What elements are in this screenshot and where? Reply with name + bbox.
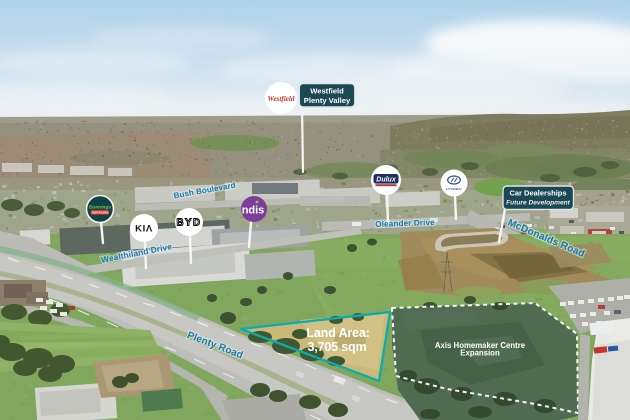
- svg-text:Oleander Drive: Oleander Drive: [375, 217, 435, 229]
- svg-text:BYD: BYD: [177, 218, 202, 229]
- svg-text:Westfield: Westfield: [310, 87, 344, 96]
- svg-text:ndis: ndis: [242, 205, 265, 217]
- svg-text:Dulux: Dulux: [376, 177, 397, 184]
- svg-text:KIΛ: KIΛ: [135, 224, 153, 235]
- svg-text:Land Area:: Land Area:: [306, 326, 369, 340]
- svg-text:warehouse: warehouse: [91, 211, 109, 215]
- svg-text:Car Dealerships: Car Dealerships: [509, 189, 566, 198]
- svg-text:Future Development: Future Development: [506, 200, 571, 207]
- svg-text:3,705 sqm: 3,705 sqm: [307, 340, 366, 354]
- svg-text:Expansion: Expansion: [460, 349, 500, 358]
- svg-text:Westfield: Westfield: [267, 95, 294, 103]
- svg-text:Bunnings: Bunnings: [89, 205, 111, 211]
- svg-text:Plenty Valley: Plenty Valley: [304, 96, 351, 105]
- svg-text:HYUNDAI: HYUNDAI: [446, 187, 462, 191]
